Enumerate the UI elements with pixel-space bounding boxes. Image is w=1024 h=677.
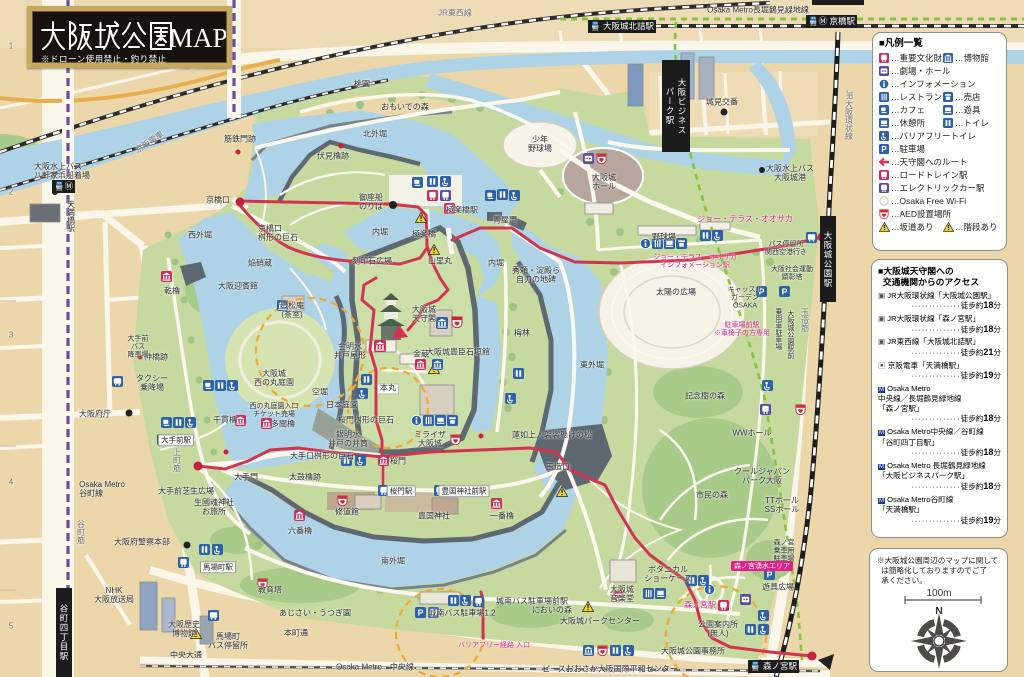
svg-text:…インフォメーション: …インフォメーション (891, 79, 976, 89)
svg-text:…Osaka Free Wi-Fi: …Osaka Free Wi-Fi (891, 196, 966, 206)
svg-text:MAP: MAP (169, 23, 226, 53)
svg-text:…重要文化財: …重要文化財 (891, 53, 943, 63)
svg-text:…劇場・ホール: …劇場・ホール (891, 66, 951, 76)
svg-text:…休憩所: …休憩所 (891, 118, 926, 128)
svg-text:…駐車場: …駐車場 (891, 144, 926, 154)
svg-text:…階段あり: …階段あり (955, 222, 998, 232)
svg-text:100m: 100m (926, 588, 951, 599)
svg-text:…天守閣へのルート: …天守閣へのルート (891, 157, 968, 167)
svg-text:…トイレ: …トイレ (955, 118, 989, 128)
svg-text:…レストラン: …レストラン (891, 92, 942, 102)
svg-text:…カフェ: …カフェ (891, 105, 925, 115)
svg-text:…売店: …売店 (955, 92, 981, 102)
svg-text:…AED設置場所: …AED設置場所 (891, 209, 951, 219)
svg-text:…エレクトリックカー駅: …エレクトリックカー駅 (891, 183, 985, 193)
svg-text:…博物館: …博物館 (955, 53, 989, 63)
svg-text:…ロードトレイン駅: …ロードトレイン駅 (891, 170, 968, 180)
svg-text:…バリアフリートイレ: …バリアフリートイレ (891, 131, 976, 141)
svg-text:…坂道あり: …坂道あり (891, 222, 934, 232)
svg-text:…遊具: …遊具 (955, 105, 981, 115)
